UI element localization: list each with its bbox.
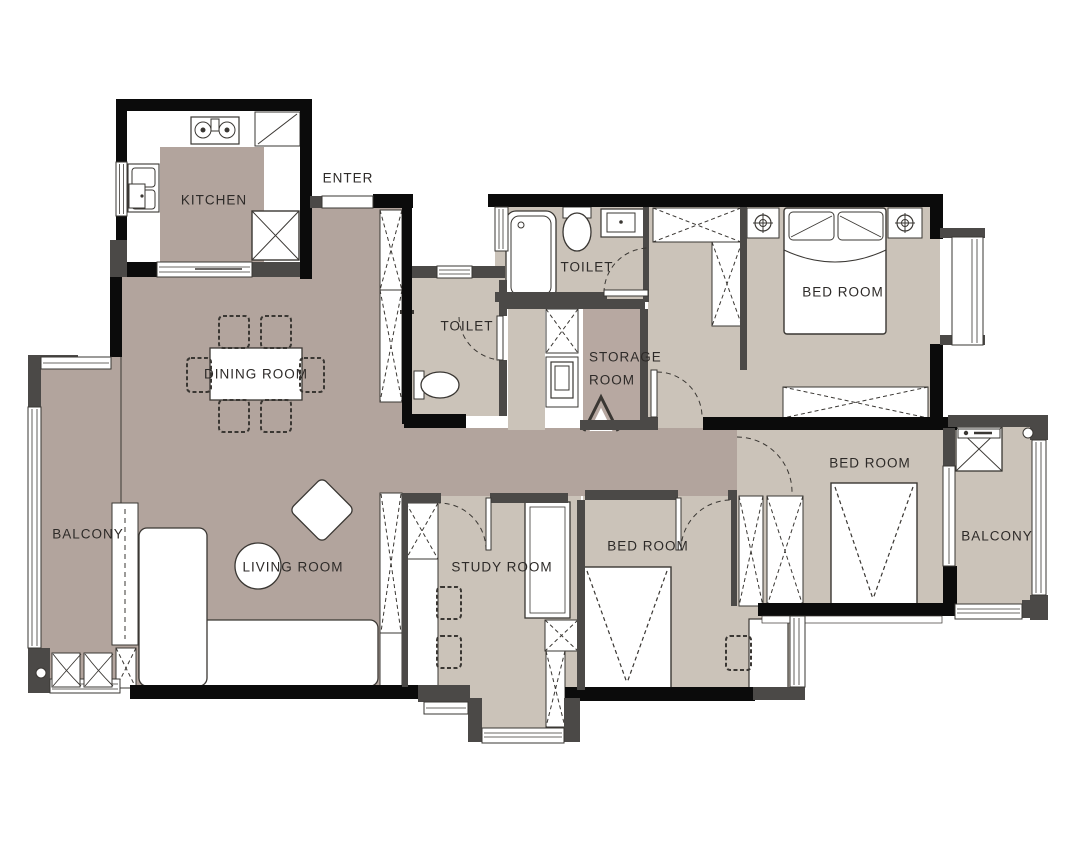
- wall-storage-bottom: [580, 420, 648, 430]
- room-label-living-room: LIVING ROOM: [242, 560, 343, 575]
- wall-kitchen-left-upper: [116, 99, 127, 162]
- room-label-storage-line-2: ROOM: [589, 373, 635, 388]
- room-label-bedroom-right: BED ROOM: [829, 456, 911, 471]
- balcony-corner-dot: [36, 668, 46, 678]
- washing-machine-knob: [964, 431, 968, 435]
- room-label-bedroom-middle: BED ROOM: [607, 539, 689, 554]
- wall-toilet-mid-top-a: [412, 266, 437, 278]
- wall-study-bottom: [418, 685, 470, 702]
- wall-north: [488, 194, 943, 207]
- window-kitchen-left: [116, 162, 127, 216]
- window-toilet-top: [495, 207, 508, 251]
- room-label-storage-line-1: STORAGE: [589, 350, 662, 365]
- door-toilet-top-leaf: [604, 290, 648, 296]
- wall-entry-top-stub: [310, 196, 322, 208]
- toilet-top-sink-dot: [619, 220, 623, 224]
- toilet-top-bowl: [563, 213, 591, 251]
- wall-balcony-r-corner: [1022, 600, 1048, 618]
- wall-bedroom-right-bottom: [758, 603, 957, 616]
- wall-kitchen-left-lower: [116, 216, 127, 242]
- wall-bay-right: [564, 698, 580, 742]
- wall-toilet-mid-bottom: [404, 414, 466, 428]
- kitchen-door-knob: [140, 194, 143, 197]
- bed-middle: [583, 567, 671, 688]
- wall-living-bottom: [130, 685, 418, 699]
- wall-living-study-divider: [402, 493, 408, 687]
- wall-toilet-mid-top-b: [472, 266, 505, 278]
- wall-toilet-mid-right-a: [499, 280, 507, 316]
- wall-kitchen-top: [116, 99, 312, 111]
- room-label-bedroom-top-right: BED ROOM: [802, 285, 884, 300]
- room-label-dining-room: DINING ROOM: [204, 367, 308, 382]
- entry-threshold: [322, 196, 373, 208]
- wall-entry-right: [402, 194, 412, 424]
- room-label-enter: ENTER: [323, 171, 374, 186]
- wall-balcony-r-div-top: [943, 428, 955, 466]
- bathtub: [506, 211, 556, 300]
- wall-balcony-r-right-top: [1030, 415, 1048, 440]
- wall-study-top-b: [490, 493, 568, 503]
- wall-storage-right: [640, 309, 648, 430]
- wall-study-mid-divider: [577, 500, 585, 690]
- bay-window: [952, 237, 983, 345]
- window-balcony-r-right: [1032, 440, 1046, 595]
- wall-living-left: [110, 277, 122, 357]
- wall-kitchen-pass-end: [252, 262, 300, 277]
- wall-bedroom-mid-top-a: [585, 490, 678, 500]
- wall-toilet-mid-right-b: [499, 360, 507, 416]
- wall-study-top-a: [406, 493, 441, 503]
- wall-kitchen-left-base: [110, 240, 127, 277]
- room-label-kitchen: KITCHEN: [181, 193, 247, 208]
- tv-cabinet: [380, 493, 402, 633]
- floor-hall: [402, 428, 737, 496]
- floor-plan: KITCHEN ENTER TOILET TOILET DINING ROOM …: [0, 0, 1080, 853]
- balcony-right-dot: [1023, 428, 1033, 438]
- wall-hall-divider: [740, 207, 747, 370]
- wall-kitchen-right: [300, 99, 312, 279]
- wall-bedroom-mid-bottom: [565, 687, 755, 701]
- window-bay-bottom: [482, 728, 564, 743]
- pillow-left: [789, 212, 834, 240]
- tv-cabinet-lower: [380, 633, 402, 687]
- wall-mid-right-divider: [731, 496, 737, 606]
- wall-hall-south-stub: [643, 417, 658, 430]
- wall-balcony-l-corner-b: [28, 355, 41, 407]
- nook-desk: [749, 619, 788, 688]
- window-nook: [790, 616, 805, 687]
- stove-burner-left-dot: [201, 128, 206, 133]
- sill-bedroom-right: [762, 616, 942, 623]
- room-label-toilet-middle: TOILET: [440, 319, 493, 334]
- window-toilet-mid: [437, 266, 472, 278]
- pillow-right: [838, 212, 883, 240]
- bed-right: [831, 483, 917, 604]
- wall-storage-top: [507, 299, 645, 309]
- room-label-study-room: STUDY ROOM: [451, 560, 552, 575]
- floor-wet-hall: [508, 309, 545, 430]
- toilet-mid-bowl: [421, 372, 459, 398]
- door-hall-leaf: [651, 370, 657, 417]
- wall-bedroom-tr-bottom: [703, 417, 957, 430]
- window-balcony-left: [28, 407, 41, 648]
- floor-plan-svg: [0, 0, 1080, 853]
- hall-column-sink: [551, 362, 573, 398]
- floor-toilet-middle: [412, 278, 502, 416]
- floor-storage: [583, 309, 643, 422]
- window-balcony-r-sill: [955, 604, 1022, 619]
- door-toilet-mid-leaf: [497, 316, 503, 360]
- floor-balcony-left: [38, 357, 120, 687]
- stove-burner-right-dot: [225, 128, 230, 133]
- sofa-arm: [139, 528, 207, 686]
- room-label-balcony-left: BALCONY: [52, 527, 124, 542]
- study-counter: [406, 558, 438, 687]
- room-label-balcony-right: BALCONY: [961, 529, 1033, 544]
- wall-toilet-top-right: [643, 207, 649, 302]
- door-study-leaf: [486, 498, 491, 550]
- wall-bay-left: [468, 698, 482, 742]
- stove-center: [211, 119, 219, 131]
- room-label-toilet-top: TOILET: [560, 260, 613, 275]
